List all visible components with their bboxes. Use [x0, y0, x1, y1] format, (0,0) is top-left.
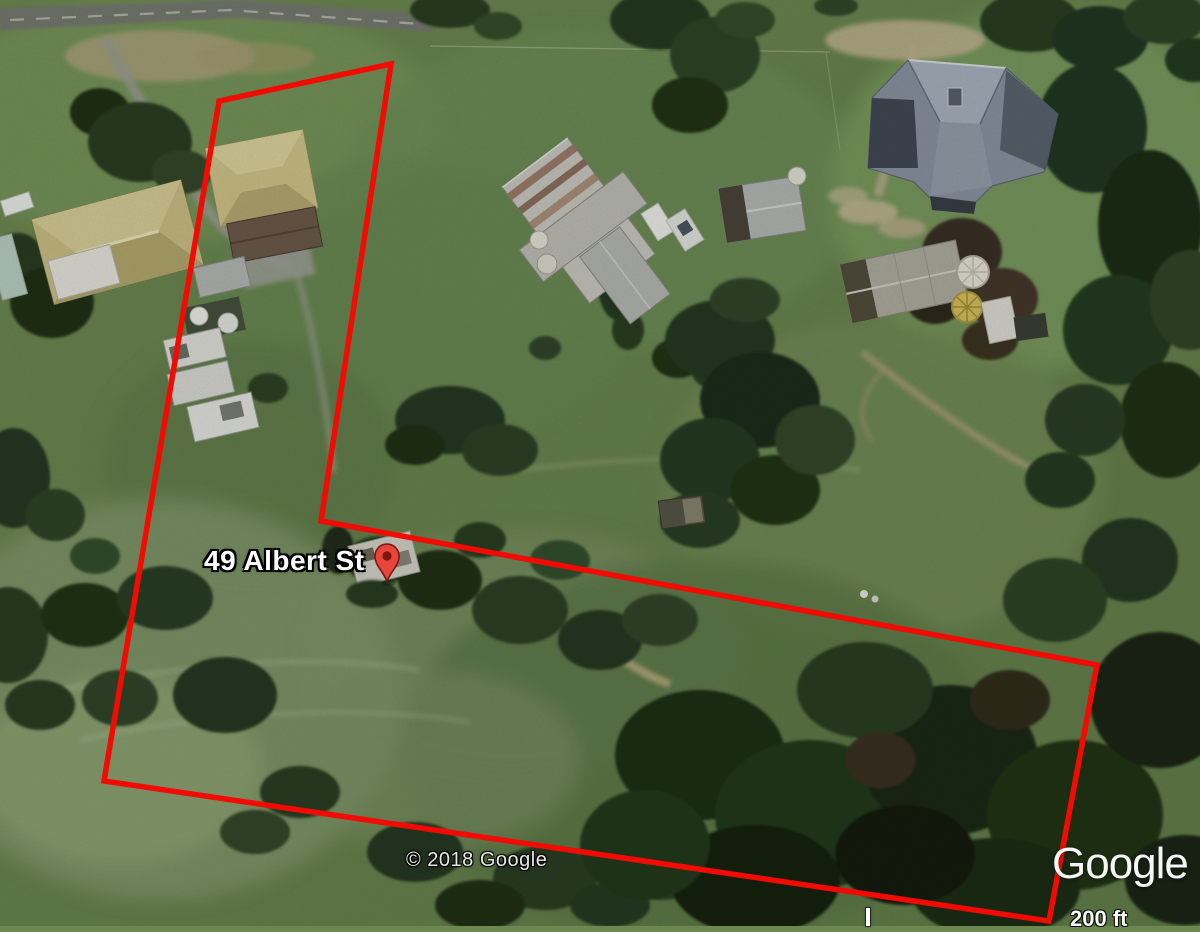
satellite-imagery[interactable] [0, 0, 1200, 926]
photo-grain [0, 0, 1200, 926]
satellite-map-viewport[interactable]: 49 Albert St © 2018 Google Google 200 ft [0, 0, 1200, 926]
